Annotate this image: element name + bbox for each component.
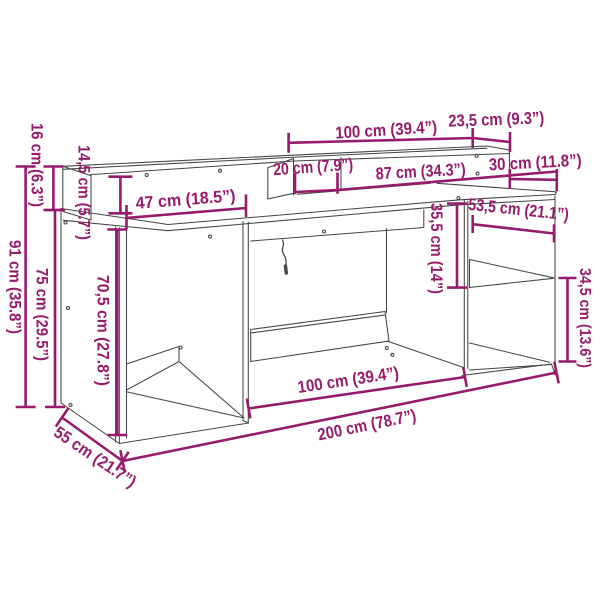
- svg-text:70,5 cm (27.8”): 70,5 cm (27.8”): [94, 275, 112, 386]
- svg-text:30 cm (11.8”): 30 cm (11.8”): [488, 151, 582, 175]
- svg-text:91 cm (35.8”): 91 cm (35.8”): [6, 240, 24, 334]
- svg-text:16 cm (6.3”): 16 cm (6.3”): [28, 123, 46, 207]
- svg-text:75 cm (29.5”): 75 cm (29.5”): [33, 268, 51, 361]
- svg-text:35,5 cm (14”): 35,5 cm (14”): [427, 203, 445, 294]
- svg-text:100 cm (39.4”): 100 cm (39.4”): [296, 363, 400, 397]
- svg-text:34,5 cm (13.6”): 34,5 cm (13.6”): [576, 268, 593, 368]
- svg-text:23,5 cm (9.3”): 23,5 cm (9.3”): [448, 108, 545, 130]
- svg-text:14,5 cm (5.7”): 14,5 cm (5.7”): [75, 145, 93, 240]
